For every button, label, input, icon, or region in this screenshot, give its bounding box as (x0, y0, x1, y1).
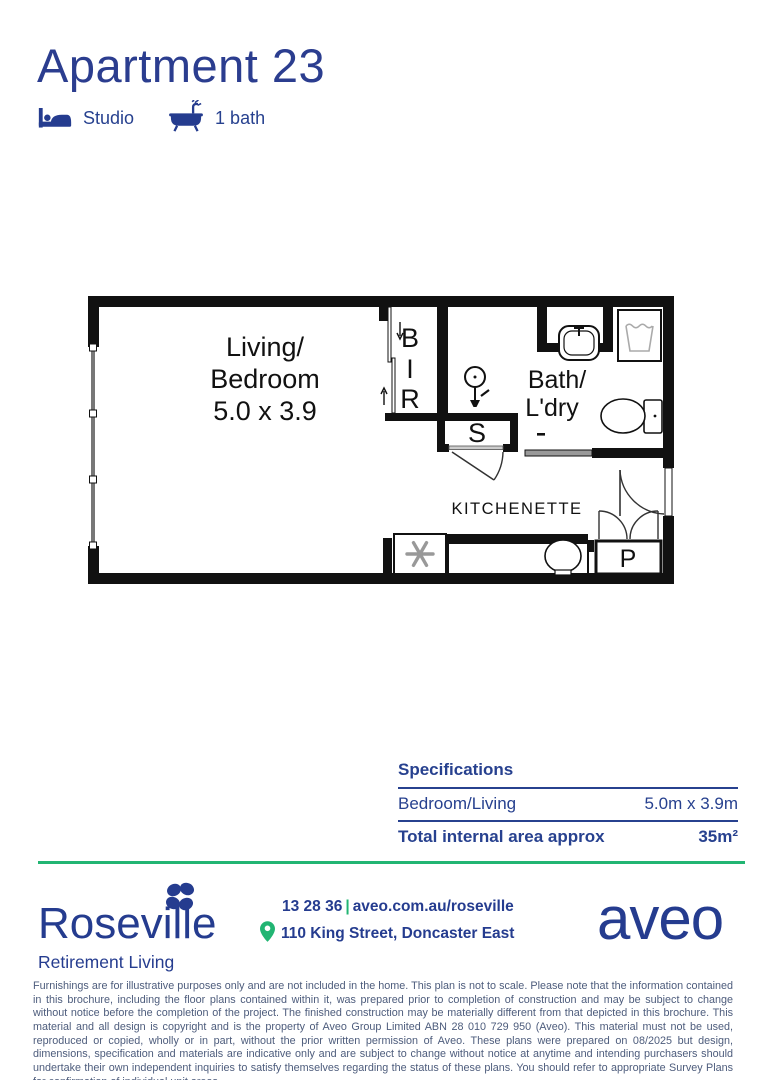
specifications-title: Specifications (398, 760, 738, 787)
spec-value: 35m² (698, 827, 738, 847)
basin-icon (559, 326, 599, 360)
cooktop-icon (394, 534, 446, 574)
location-pin-icon (260, 921, 275, 947)
separator: | (342, 898, 352, 915)
washing-trough-icon (618, 310, 661, 361)
entry-door (620, 468, 672, 516)
feature-studio: Studio (38, 103, 134, 135)
contact-address: 110 King Street, Doncaster East (260, 921, 514, 947)
label-living-dimensions: 5.0 x 3.9 (213, 396, 317, 426)
label-bir-r: R (400, 384, 420, 414)
label-living-2: Bedroom (210, 364, 320, 394)
community-name: Roseville (38, 899, 217, 949)
community-logo: Roseville Retirement Living (38, 899, 217, 973)
label-pantry: P (620, 545, 637, 573)
phone-number: 13 28 36 (282, 898, 342, 915)
label-living-1: Living/ (226, 332, 305, 362)
label-bath-2: L'dry (525, 394, 579, 422)
aveo-logo: aveo (597, 884, 723, 953)
community-tagline: Retirement Living (38, 952, 217, 973)
specifications-table: Specifications Bedroom/Living 5.0m x 3.9… (398, 760, 738, 853)
label-bath-1: Bath/ (528, 366, 586, 394)
contact-phone-web: 13 28 36|aveo.com.au/roseville (282, 898, 514, 916)
feature-label-baths: 1 bath (215, 108, 265, 129)
bath-sliding-door (525, 450, 592, 456)
bath-door-handle (537, 433, 545, 436)
feature-bath: 1 bath (168, 100, 265, 137)
label-kitchenette: KITCHENETTE (451, 500, 582, 518)
teal-divider (38, 861, 745, 864)
bath-icon (168, 100, 204, 137)
spec-label: Total internal area approx (398, 827, 605, 847)
spec-row-total-area: Total internal area approx 35m² (398, 820, 738, 853)
disclaimer-text: Furnishings are for illustrative purpose… (33, 980, 733, 1080)
spec-value: 5.0m x 3.9m (644, 794, 738, 814)
contact-block: 13 28 36|aveo.com.au/roseville 110 King … (260, 898, 514, 947)
toilet-icon (601, 399, 662, 433)
bed-icon (38, 103, 72, 135)
floor-plan: Living/ Bedroom 5.0 x 3.9 B I R Bath/ L'… (85, 294, 677, 586)
shower-head-icon (465, 367, 489, 407)
spec-row-bedroom-living: Bedroom/Living 5.0m x 3.9m (398, 787, 738, 820)
label-shower: S (468, 418, 486, 448)
window (90, 344, 97, 549)
feature-label-bedrooms: Studio (83, 108, 134, 129)
spec-label: Bedroom/Living (398, 794, 516, 814)
label-bir-b: B (401, 323, 419, 353)
label-bir-i: I (406, 354, 414, 384)
address-text: 110 King Street, Doncaster East (281, 925, 514, 943)
brochure-page: Apartment 23 Studio (0, 0, 764, 1080)
feature-summary: Studio 1 bath (38, 100, 287, 137)
website-link[interactable]: aveo.com.au/roseville (353, 898, 514, 915)
page-title: Apartment 23 (37, 38, 325, 93)
